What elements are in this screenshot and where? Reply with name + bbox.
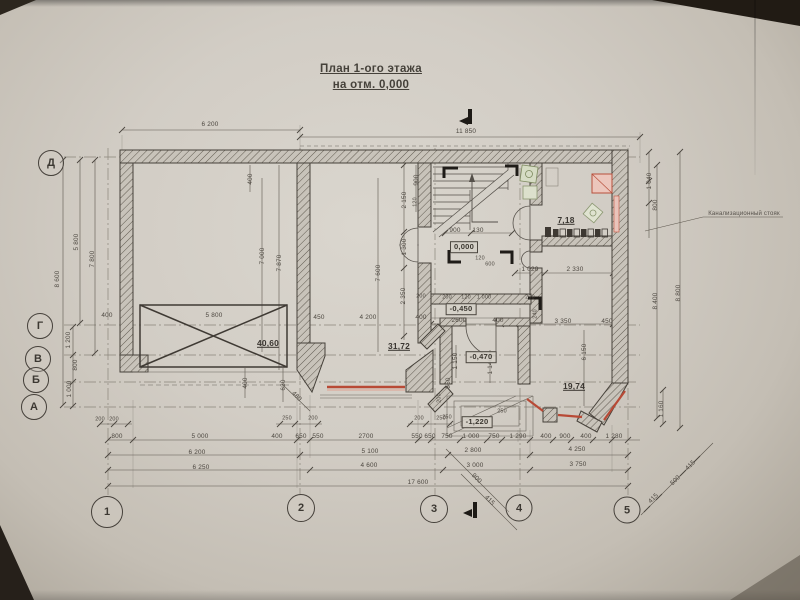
- title-line-1: План 1-ого этажа: [320, 62, 422, 78]
- area-bathroom: 7,18: [557, 216, 574, 224]
- axis-circle-Б: Б: [23, 367, 49, 393]
- dim-label: 6 200: [202, 122, 219, 128]
- dim-label: 17 600: [408, 480, 429, 486]
- dim-label: 400: [540, 434, 551, 440]
- dim-label: 1 000: [477, 295, 492, 300]
- dim-label: 4 200: [360, 315, 377, 321]
- dim-label: 200: [416, 294, 426, 299]
- dim-label: 2700: [358, 434, 373, 440]
- dim-label: 450: [601, 319, 612, 325]
- dim-label: 2 150: [402, 192, 408, 209]
- dim-label: 200: [109, 417, 119, 422]
- dim-label: 1 160: [659, 401, 665, 418]
- dim-label: 400: [101, 313, 112, 319]
- dim-label: 1 000: [67, 381, 73, 398]
- drawing-title: План 1-ого этажа на отм. 0,000: [320, 62, 422, 93]
- dim-label: 1 280: [606, 434, 623, 440]
- level-tambour: -0,470: [466, 351, 497, 363]
- dim-label: 1 300: [402, 239, 408, 256]
- dim-label: 1 020: [522, 267, 539, 273]
- dim-label: 200: [442, 295, 452, 300]
- dim-label: 200: [414, 416, 424, 421]
- axis-circle-Д: Д: [38, 150, 64, 176]
- axis-circle-Г: Г: [27, 313, 53, 339]
- dim-label: 3 350: [555, 319, 572, 325]
- dim-label: 400: [271, 434, 282, 440]
- dim-label: 5 800: [206, 313, 223, 319]
- dim-label: 630: [281, 379, 287, 390]
- dim-label: 900: [414, 174, 420, 185]
- dim-label: 4 600: [361, 463, 378, 469]
- dim-label: 2 330: [567, 267, 584, 273]
- dim-label: 2600: [451, 318, 466, 324]
- dim-label: 200: [525, 295, 535, 300]
- dim-label: 250: [282, 416, 292, 421]
- dim-label: 3 750: [570, 462, 587, 468]
- photo-shadow-bottom: [0, 590, 800, 600]
- title-line-2: на отм. 0,000: [320, 78, 422, 94]
- dim-label: 650: [295, 434, 306, 440]
- dim-label: 1 150: [453, 353, 459, 370]
- dim-label: 8 800: [676, 285, 682, 302]
- level-hall: 0,000: [450, 241, 478, 253]
- area-bay-room: 19,74: [563, 382, 585, 390]
- dim-label: 650: [424, 434, 435, 440]
- dim-label: 6 250: [193, 465, 210, 471]
- dim-label: 250: [497, 409, 507, 414]
- dim-label: 400: [580, 434, 591, 440]
- dim-label: 200: [437, 393, 442, 403]
- dim-label: 800: [73, 359, 79, 370]
- dim-label: 120: [475, 256, 485, 261]
- dim-label: 7 600: [376, 265, 382, 282]
- axis-circle-А: А: [21, 394, 47, 420]
- dim-label: 400: [415, 315, 426, 321]
- axis-circle-3: 3: [420, 495, 448, 523]
- axis-circle-4: 4: [506, 495, 533, 522]
- dim-label: 400: [243, 377, 249, 388]
- axis-circle-5: 5: [614, 497, 641, 524]
- dim-label: 5 000: [192, 434, 209, 440]
- dim-label: 400: [248, 173, 254, 184]
- dim-label: 6 200: [189, 450, 206, 456]
- dim-label: 7 000: [260, 248, 266, 265]
- dim-label: 6 150: [582, 344, 588, 361]
- area-living-room: 31,72: [388, 342, 410, 350]
- dim-label: 200: [95, 417, 105, 422]
- dim-label: 120: [413, 197, 418, 207]
- dim-label: 240: [533, 309, 538, 319]
- photo-of-drawing: План 1-ого этажа на отм. 0,000 6 20011 8…: [0, 0, 800, 600]
- dim-label: 550: [446, 377, 452, 388]
- dim-label: 4 250: [569, 447, 586, 453]
- paper-fold-line: [754, 0, 756, 175]
- dim-label: 8 400: [653, 293, 659, 310]
- dim-label: 7 870: [277, 255, 283, 272]
- dim-label: 1 200: [66, 332, 72, 349]
- dim-label: 5 800: [74, 234, 80, 251]
- drawing-sheet: План 1-ого этажа на отм. 0,000 6 20011 8…: [0, 0, 800, 600]
- dim-label: 250: [436, 416, 446, 421]
- area-garage: 40,60: [257, 339, 279, 347]
- dim-label: 800: [653, 199, 659, 210]
- dim-label: 900: [559, 434, 570, 440]
- level-entrance: -1,220: [462, 416, 493, 428]
- dim-label: 900: [449, 228, 460, 234]
- dim-label: 130: [472, 228, 483, 234]
- dim-label: 7 800: [90, 251, 96, 268]
- dim-label: 1 040: [647, 173, 653, 190]
- dim-label: 600: [485, 262, 495, 267]
- dim-label: 550: [312, 434, 323, 440]
- dim-label: 11 850: [456, 129, 476, 135]
- dim-label: 3 000: [467, 463, 484, 469]
- dim-label: 750: [441, 434, 452, 440]
- level-porch: -0,450: [446, 303, 477, 315]
- axis-circle-2: 2: [287, 494, 315, 522]
- dim-label: 2 800: [465, 448, 482, 454]
- dim-label: 1 290: [510, 434, 527, 440]
- dim-label: 750: [488, 434, 499, 440]
- dim-label: 1 000: [463, 434, 480, 440]
- dim-label: 550: [411, 434, 422, 440]
- dim-label: 120: [461, 295, 471, 300]
- dim-label: 2 350: [401, 288, 407, 305]
- dim-label: 8 600: [55, 271, 61, 288]
- axis-circle-1: 1: [91, 496, 123, 528]
- dim-label: 800: [111, 434, 122, 440]
- sewer-riser-note: Канализационный стояк: [708, 211, 780, 217]
- dim-label: 400: [492, 318, 503, 324]
- dim-label: 450: [313, 315, 324, 321]
- dim-label: 200: [308, 416, 318, 421]
- construction-lines: [133, 146, 630, 436]
- dim-label: 5 100: [362, 449, 379, 455]
